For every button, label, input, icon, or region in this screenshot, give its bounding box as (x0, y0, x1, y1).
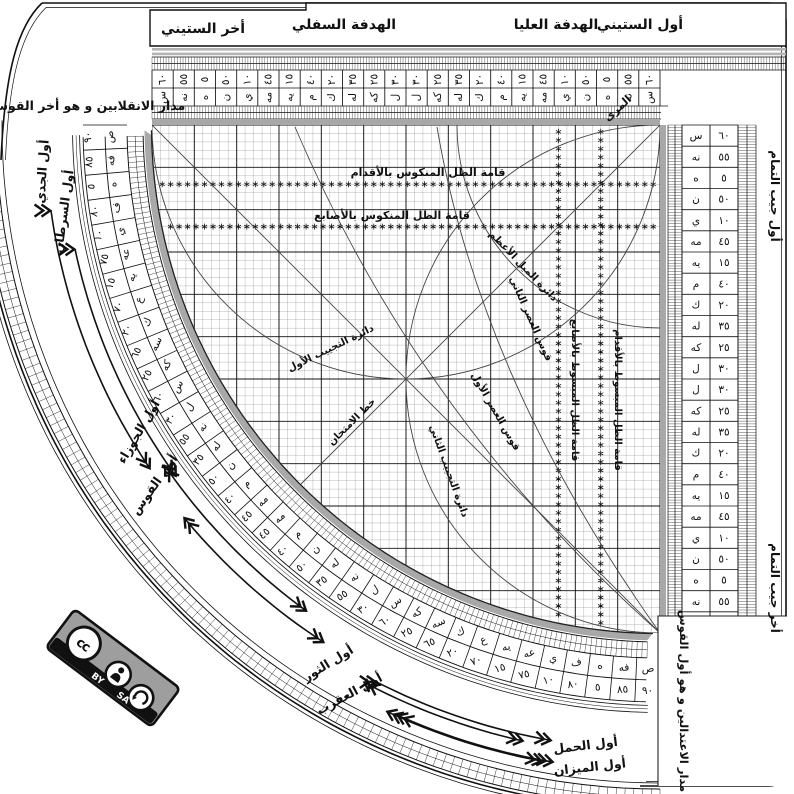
right-scale-number-hindu: ٢٠ (718, 299, 729, 311)
right-scale-number-abjad: مه (690, 236, 701, 248)
right-scale-number-abjad: يه (692, 257, 701, 269)
right-scale-number-hindu: ٥٥ (718, 596, 729, 608)
right-scale-number-hindu: ٥ (721, 575, 727, 587)
label-mankus-asabi: قامة الظل المنكوس بالأصابع (314, 208, 470, 222)
top-scale-number-abjad: ه (199, 95, 211, 101)
top-scale-number-hindu: ٦٠ (643, 74, 655, 85)
top-scale-number-hindu: ١٠ (559, 74, 571, 85)
top-scale-number-hindu: ٤٠ (495, 74, 507, 85)
right-scale-number-hindu: ٤٠ (718, 278, 729, 290)
top-scale-number-abjad: ي (559, 93, 571, 101)
right-scale-number-abjad: نه (692, 151, 701, 163)
grid-right-gray-strip (660, 125, 666, 633)
right-scale-number-abjad: يه (692, 490, 701, 502)
right-scale-number-abjad: م (693, 278, 700, 290)
arc-scale-number-abjad: فه (618, 661, 629, 674)
sight-bar (150, 3, 786, 46)
solstice-note: مدار الانقلابين و هو أخر القوس (0, 97, 185, 113)
right-scale-number-hindu: ٥٥ (718, 151, 729, 163)
quadrant-svg: أول الستيني الهدفة العليا الهدفة السفلي … (0, 0, 794, 794)
top-scale-number-abjad: كه (368, 92, 380, 103)
right-scale-number-hindu: ١٠ (718, 532, 729, 544)
top-scale-number-hindu: ٥ (199, 77, 211, 83)
top-scale-number-abjad: كه (432, 92, 444, 103)
right-scale-number-abjad: م (693, 469, 700, 481)
top-scale-number-hindu: ١٥ (516, 74, 528, 85)
right-scale-number-abjad: ن (692, 553, 700, 565)
arc-scale-number-abjad: فه (105, 155, 118, 166)
top-scale-number-hindu: ١٥ (284, 74, 296, 85)
right-scale-number-abjad: ك (692, 448, 701, 460)
top-scale-number-hindu: ٢٥ (368, 74, 380, 85)
top-scale-number-hindu: ٥٥ (178, 74, 190, 85)
label-mabsut-aqdam: قامة الظل المبسوط بالأقدام (612, 329, 625, 471)
right-scale-number-hindu: ٢٥ (718, 405, 729, 417)
right-scale-number-abjad: ن (692, 194, 700, 206)
top-scale-number-hindu: ٢٠ (474, 74, 486, 85)
top-scale-number-hindu: ٦٠ (157, 74, 169, 85)
right-scale-number-hindu: ٢٠ (718, 448, 729, 460)
top-scale-number-hindu: ٣٥ (347, 74, 359, 85)
right-scale-number-hindu: ٣٥ (718, 321, 729, 333)
sine-quadrant-diagram: أول الستيني الهدفة العليا الهدفة السفلي … (0, 0, 794, 794)
top-scale-number-hindu: ٤٥ (262, 74, 274, 85)
right-scale-number-abjad: ه (693, 172, 699, 184)
tab-hadafa-ulya: الهدفة العليا (514, 17, 599, 33)
right-scale-number-abjad: نه (692, 596, 701, 608)
top-scale-number-abjad: مه (262, 92, 274, 103)
top-scale-number-abjad: ك (474, 93, 486, 102)
top-scale-number-hindu: ٤٥ (538, 74, 550, 85)
top-scale-number-hindu: ٥٠ (220, 74, 232, 85)
right-scale-number-hindu: ٥٠ (718, 553, 729, 565)
right-scale-number-abjad: له (692, 426, 701, 438)
right-scale-number-abjad: كه (691, 405, 702, 417)
cosine-end-label: أخر جيب التمام (767, 543, 783, 633)
right-scale-number-abjad: ه (693, 575, 699, 587)
top-scale-number-hindu: ٥٥ (622, 74, 634, 85)
top-scale-number-abjad: ل (389, 94, 401, 102)
right-scale-number-hindu: ٣٥ (718, 426, 729, 438)
right-scale-number-abjad: ي (692, 532, 700, 544)
grid-top-gray-strip (152, 119, 660, 125)
top-scale-number-hindu: ٣٥ (453, 74, 465, 85)
top-scale-number-abjad: م (495, 94, 507, 101)
right-scale-number-abjad: ي (692, 215, 700, 227)
arc-scale-number-hindu: ٩٠ (82, 132, 94, 144)
top-scale-number-abjad: مه (538, 92, 550, 103)
top-gray-band (152, 48, 786, 51)
tab-hadafa-sufla: الهدفة السفلي (292, 17, 396, 33)
top-scale-number-hindu: ٣٠ (389, 74, 401, 85)
right-scale-number-abjad: س (690, 130, 703, 142)
right-scale-number-abjad: ل (692, 384, 700, 396)
top-scale-number-abjad: ه (601, 95, 613, 101)
right-scale-number-abjad: كه (691, 342, 702, 354)
arc-scale-number-hindu: ١٠ (542, 673, 555, 687)
arc-scale-number-hindu: ٨٥ (83, 156, 96, 168)
right-scale-number-hindu: ١٥ (718, 490, 729, 502)
top-scale-number-abjad: يه (284, 93, 296, 102)
right-scale-number-hindu: ٣٠ (718, 363, 729, 375)
arc-scale-number-hindu: ٨٠ (566, 678, 579, 692)
top-scale-number-hindu: ٤٠ (305, 74, 317, 85)
top-scale-number-abjad: ن (580, 94, 592, 102)
top-scale-number-hindu: ٥ (601, 77, 613, 83)
top-scale-number-abjad: له (347, 93, 359, 102)
equinox-note: مدار الاعتدالين و هو أول القوس (676, 610, 692, 792)
right-scale-number-hindu: ١٠ (718, 215, 729, 227)
top-scale-number-hindu: ٢٠ (326, 74, 338, 85)
top-scale-number-abjad: ن (220, 94, 232, 102)
cosine-start-label: أول جيب التمام (767, 150, 783, 241)
right-scale-number-hindu: ٥ (721, 172, 727, 184)
arc-scale-number-abjad: ص (104, 130, 116, 143)
arc-scale-number-hindu: ٨٥ (617, 683, 629, 696)
right-scale-number-hindu: ٣٠ (718, 384, 729, 396)
right-scale-number-abjad: ك (692, 299, 701, 311)
top-scale-number-abjad: ل (411, 94, 423, 102)
right-scale-number-hindu: ١٥ (718, 257, 729, 269)
arc-scale-number-hindu: ٨٠ (88, 205, 102, 218)
right-scale-number-hindu: ٤٥ (718, 511, 729, 523)
right-scale-number-hindu: ٥٠ (718, 194, 729, 206)
top-scale-number-abjad: يه (516, 93, 528, 102)
arc-scale-number-abjad: ص (642, 663, 655, 675)
tab-awwal-sittini: أول الستيني (597, 15, 683, 33)
top-scale-number-hindu: ٣٠ (411, 74, 423, 85)
arc-scale-number-abjad: ف (110, 201, 124, 214)
top-scale-number-abjad: س (643, 91, 655, 104)
top-scale-number-abjad: له (453, 93, 465, 102)
top-scale-number-hindu: ٥٠ (580, 74, 592, 85)
right-scale-number-abjad: له (692, 321, 701, 333)
arc-scale-number-hindu: ١٠ (92, 229, 106, 242)
tab-akhir-sittini: أخر الستيني (161, 19, 245, 37)
right-scale-number-hindu: ٦٠ (718, 130, 729, 142)
top-gray-band2 (152, 53, 786, 56)
right-scale-number-hindu: ٤٠ (718, 469, 729, 481)
right-scale-number-abjad: مه (690, 511, 701, 523)
label-mankus-aqdam: قامة الظل المنكوس بالأقدام (351, 165, 506, 179)
arc-scale-number-hindu: ٩٠ (642, 685, 654, 697)
top-scale-number-abjad: ي (241, 93, 253, 101)
right-scale-number-abjad: ل (692, 363, 700, 375)
label-mabsut-asabi: قامة الظل المبسوط بالأصابع (569, 319, 582, 462)
top-scale-number-hindu: ٢٥ (432, 74, 444, 85)
top-scale-number-abjad: ك (326, 93, 338, 102)
right-scale-number-hindu: ٤٥ (718, 236, 729, 248)
arc-scale-number-abjad: ف (570, 656, 583, 670)
top-scale-number-abjad: م (305, 94, 317, 101)
right-scale-number-hindu: ٢٥ (718, 342, 729, 354)
top-scale-number-hindu: ١٠ (241, 74, 253, 85)
